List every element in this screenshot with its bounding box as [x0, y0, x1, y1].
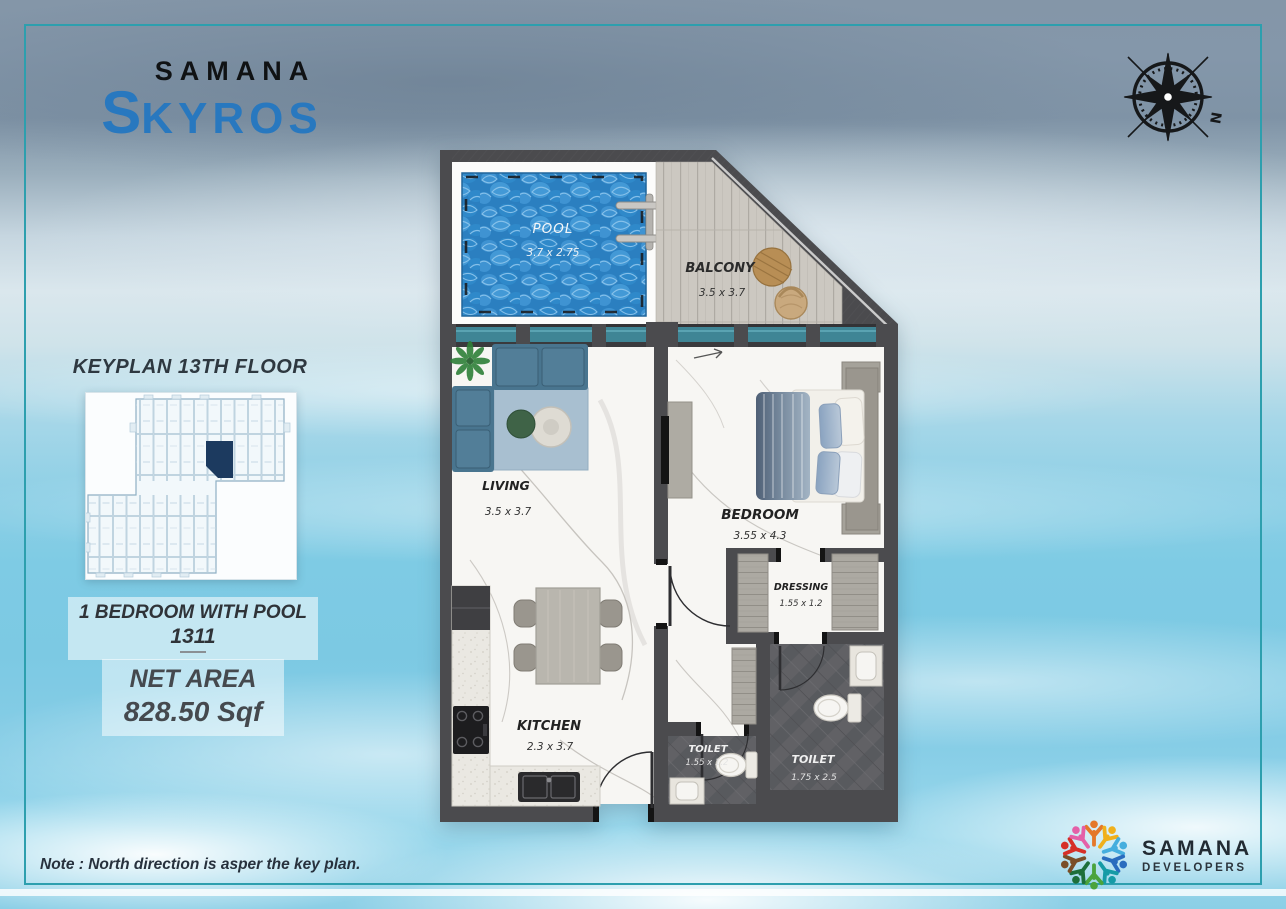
- unit-type: 1 BEDROOM WITH POOL: [68, 602, 318, 624]
- living-dims: 3.5 x 3.7: [485, 506, 532, 518]
- dressing-dims: 1.55 x 1.2: [780, 599, 823, 609]
- balcony-label: BALCONY: [685, 261, 756, 276]
- dining-table: [536, 588, 600, 684]
- sink-icon: [518, 772, 580, 802]
- pool-area: POOL 3.7 x 2.75: [462, 173, 646, 316]
- stove-icon: [453, 706, 489, 754]
- balcony-table-icon: [753, 248, 792, 286]
- bedroom-label: BEDROOM: [721, 507, 799, 523]
- toilet-large-dims: 1.75 x 2.5: [791, 773, 837, 783]
- dressing-label: DRESSING: [774, 582, 829, 593]
- net-area-box: NET AREA 828.50 Sqf: [102, 659, 284, 736]
- keyplan-title: KEYPLAN 13TH FLOOR: [70, 356, 310, 379]
- developer-tagline: DEVELOPERS: [1142, 862, 1252, 874]
- compass-rose: N: [1100, 34, 1230, 159]
- toilet-large-label: TOILET: [792, 753, 836, 766]
- washbasin-icon: [856, 652, 876, 680]
- compass-north-label: N: [1206, 111, 1224, 125]
- wardrobe-right: [832, 554, 878, 630]
- toilet-small-label: TOILET: [688, 744, 728, 755]
- project-logo: SAMANA SKYROS: [62, 56, 362, 138]
- net-area-label: NET AREA: [102, 665, 284, 694]
- coffee-table-center: [543, 419, 559, 435]
- logo-product-initial: S: [101, 87, 141, 138]
- living-label: LIVING: [482, 478, 530, 493]
- logo-product-rest: KYROS: [141, 100, 322, 137]
- north-direction-note: Note : North direction is asper the key …: [40, 856, 360, 874]
- toilet-small-dims: 1.55 x 1.2: [686, 758, 729, 768]
- washbasin-icon: [676, 782, 698, 800]
- bedroom-dims: 3.55 x 4.3: [734, 530, 787, 542]
- unit-underline: [180, 651, 206, 653]
- developer-logo: SAMANA DEVELOPERS: [1054, 814, 1252, 896]
- pouf: [507, 410, 535, 438]
- pool-label: POOL: [533, 221, 574, 237]
- pillow-blue: [819, 403, 842, 448]
- pillow-blue: [816, 451, 841, 494]
- toilet-icon: [814, 694, 861, 722]
- unit-label-box: 1 BEDROOM WITH POOL 1311: [68, 597, 318, 660]
- window-band: [446, 322, 898, 347]
- developer-name: SAMANA: [1142, 837, 1252, 861]
- hall-closet: [732, 648, 756, 724]
- wardrobe-left: [738, 554, 768, 632]
- balcony-dims: 3.5 x 3.7: [699, 287, 746, 299]
- brochure-page: SAMANA SKYROS N KEYPLAN 13TH F: [0, 0, 1286, 909]
- pool-dims: 3.7 x 2.75: [527, 247, 580, 259]
- unit-number: 1311: [68, 625, 318, 649]
- tv-console: [668, 402, 692, 498]
- logo-product-text: SKYROS: [62, 87, 362, 138]
- kitchen-dims: 2.3 x 3.7: [527, 741, 574, 753]
- balcony-basket-icon: [775, 287, 807, 319]
- kitchen-label: KITCHEN: [517, 719, 581, 734]
- floor-plan: POOL 3.7 x 2.75 BALCONY 3.5 x 3.7: [435, 145, 900, 830]
- net-area-value: 828.50 Sqf: [102, 696, 284, 728]
- keyplan-card: [85, 392, 297, 580]
- keyplan-drawing: [86, 393, 296, 579]
- tv-icon: [661, 416, 669, 484]
- developer-emblem-icon: [1054, 814, 1134, 896]
